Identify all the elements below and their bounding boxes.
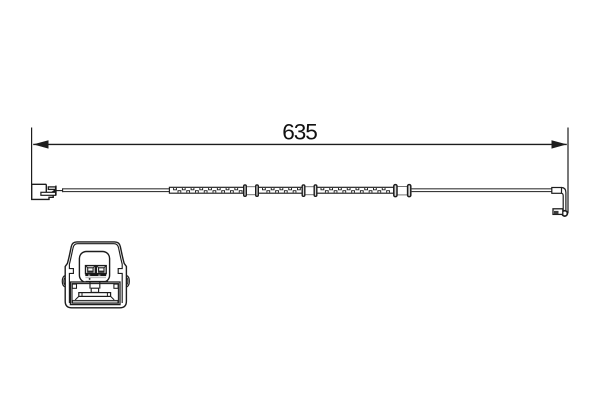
svg-text:635: 635 (282, 119, 317, 144)
